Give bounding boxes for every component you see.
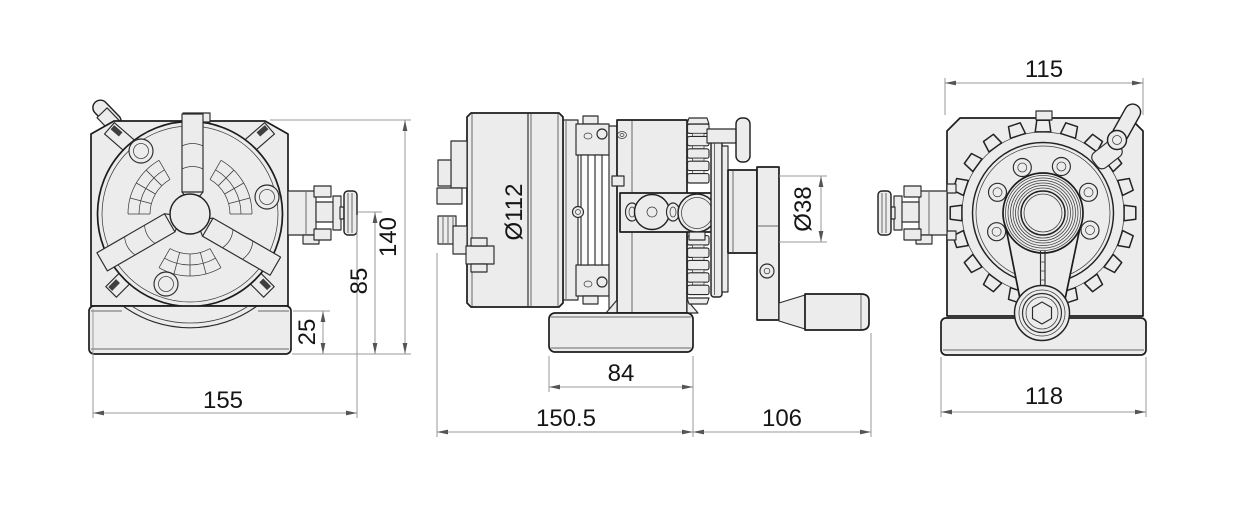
dim-front-overall-height: 140 bbox=[375, 217, 402, 257]
dial-discs bbox=[711, 141, 728, 297]
dim-side-crank-length: 106 bbox=[762, 405, 802, 432]
dim-side-body-length: 150.5 bbox=[536, 405, 596, 432]
side-clamp-knob bbox=[288, 186, 357, 244]
dim-hub-diameter: Ø38 bbox=[790, 186, 817, 231]
center-bore bbox=[1021, 191, 1065, 235]
mounting-hole bbox=[129, 139, 153, 163]
rear-view bbox=[878, 101, 1146, 355]
side-clamp-knob bbox=[878, 184, 956, 244]
technical-drawing: 155 140 85 25 Ø112 Ø38 84 150.5 106 115 … bbox=[0, 0, 1240, 507]
dim-rear-base-width: 118 bbox=[1025, 383, 1063, 410]
arm-pivot bbox=[1015, 286, 1070, 341]
dim-side-base-length: 84 bbox=[608, 360, 635, 387]
dim-front-base-height: 25 bbox=[294, 319, 321, 346]
front-view bbox=[89, 97, 357, 354]
chuck-jaw bbox=[182, 114, 203, 197]
mounting-hole bbox=[154, 272, 178, 296]
mounting-hole bbox=[255, 185, 279, 209]
side-base bbox=[549, 313, 693, 352]
crank-grip-neck bbox=[779, 295, 805, 329]
spindle-flange bbox=[1003, 173, 1083, 253]
dim-front-overall-width: 155 bbox=[203, 387, 243, 414]
dim-rear-body-width: 115 bbox=[1025, 56, 1063, 83]
dim-front-center-height: 85 bbox=[346, 268, 373, 295]
front-base bbox=[89, 306, 291, 354]
chuck-center-bore bbox=[170, 194, 210, 234]
table-clamp bbox=[573, 116, 610, 304]
top-slot-tab bbox=[1036, 111, 1052, 120]
drawing-canvas: 155 140 85 25 Ø112 Ø38 84 150.5 106 115 … bbox=[0, 0, 1240, 507]
crank-grip bbox=[805, 294, 869, 330]
dim-chuck-diameter: Ø112 bbox=[501, 184, 528, 241]
